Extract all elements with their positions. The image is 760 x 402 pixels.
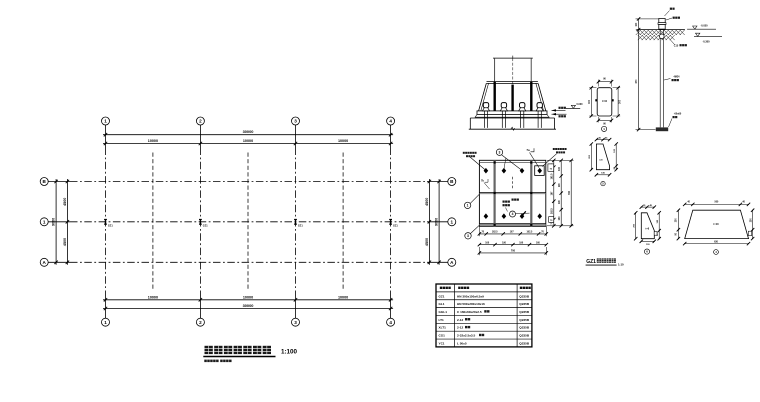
svg-text:300: 300 xyxy=(589,99,591,104)
svg-text:3: 3 xyxy=(467,234,469,238)
svg-text:162.5: 162.5 xyxy=(527,232,533,234)
svg-text:4500: 4500 xyxy=(425,238,429,246)
svg-text:4: 4 xyxy=(389,119,392,124)
svg-text:HN 500x200x10x16: HN 500x200x10x16 xyxy=(457,302,485,306)
svg-text:250: 250 xyxy=(676,218,678,223)
svg-text:300: 300 xyxy=(619,99,621,104)
svg-text:190: 190 xyxy=(559,183,561,188)
svg-text:40: 40 xyxy=(687,200,690,203)
svg-text:1: 1 xyxy=(43,220,46,225)
svg-text:30000: 30000 xyxy=(243,129,254,134)
svg-text:160: 160 xyxy=(559,166,561,171)
svg-text:180: 180 xyxy=(614,148,616,152)
svg-text:35: 35 xyxy=(643,205,646,207)
svg-text:Q235B: Q235B xyxy=(519,302,530,306)
svg-text:4M24: 4M24 xyxy=(674,75,681,78)
svg-text:140: 140 xyxy=(601,172,605,175)
svg-text:2: 2 xyxy=(199,320,202,325)
svg-text:4500: 4500 xyxy=(425,198,429,206)
svg-text:Q235B: Q235B xyxy=(519,334,530,338)
svg-text:70: 70 xyxy=(541,232,544,234)
svg-text:2-32x2.5x3.5: 2-32x2.5x3.5 xyxy=(457,334,476,338)
svg-text:190: 190 xyxy=(519,242,524,244)
svg-text:-0.050: -0.050 xyxy=(700,25,708,28)
svg-text:GZ1: GZ1 xyxy=(298,225,303,228)
svg-text:40: 40 xyxy=(598,136,601,139)
svg-text:10000: 10000 xyxy=(243,139,253,143)
svg-text:C 160x60x20x2.5: C 160x60x20x2.5 xyxy=(457,310,482,314)
svg-text:1: 1 xyxy=(451,220,454,225)
svg-text:40: 40 xyxy=(742,200,745,203)
svg-text:260: 260 xyxy=(634,223,636,227)
svg-text:10000: 10000 xyxy=(338,139,348,143)
svg-text:45: 45 xyxy=(605,136,608,139)
svg-text:160: 160 xyxy=(485,242,490,244)
svg-text:4: 4 xyxy=(512,212,514,216)
svg-text:100: 100 xyxy=(636,22,638,27)
svg-text:80: 80 xyxy=(657,233,659,236)
svg-text:CG1: CG1 xyxy=(439,334,446,338)
svg-text:1:10: 1:10 xyxy=(618,263,624,267)
svg-text:HN 300x150x6.5x9: HN 300x150x6.5x9 xyxy=(457,294,484,298)
svg-text:10000: 10000 xyxy=(243,295,253,299)
svg-text:167: 167 xyxy=(510,232,515,234)
svg-text:Q235B: Q235B xyxy=(519,341,530,345)
svg-text:Q235B: Q235B xyxy=(519,326,530,330)
svg-text:-60x60: -60x60 xyxy=(674,113,682,116)
svg-text:GZ1: GZ1 xyxy=(108,225,113,228)
svg-text:1: 1 xyxy=(467,204,469,208)
svg-text:162.5: 162.5 xyxy=(552,173,554,179)
svg-text:GZ1: GZ1 xyxy=(393,225,398,228)
svg-text:160: 160 xyxy=(559,216,561,221)
svg-text:2: 2 xyxy=(199,119,202,124)
svg-text:162.5: 162.5 xyxy=(552,208,554,214)
svg-text:162.5: 162.5 xyxy=(492,232,498,234)
svg-text:3: 3 xyxy=(294,119,297,124)
svg-text:L 50x5: L 50x5 xyxy=(457,341,467,345)
svg-text:9000: 9000 xyxy=(435,218,439,226)
svg-text:9000: 9000 xyxy=(52,218,56,226)
svg-text:Q235B: Q235B xyxy=(519,318,530,322)
svg-text:700: 700 xyxy=(511,250,516,253)
svg-text:3: 3 xyxy=(294,320,297,325)
svg-text:2-12: 2-12 xyxy=(457,318,463,322)
svg-text:4: 4 xyxy=(389,320,392,325)
svg-text:GGL1: GGL1 xyxy=(439,310,448,314)
svg-text:-0.300: -0.300 xyxy=(702,41,710,44)
svg-text:670: 670 xyxy=(636,79,638,84)
svg-text:250: 250 xyxy=(750,218,752,223)
svg-text:Q235B: Q235B xyxy=(519,294,530,298)
svg-text:10000: 10000 xyxy=(148,295,158,299)
svg-text:130: 130 xyxy=(646,244,650,246)
svg-text:3: 3 xyxy=(499,150,501,154)
svg-text:10000: 10000 xyxy=(338,295,348,299)
svg-text:260: 260 xyxy=(589,154,591,158)
svg-text:45: 45 xyxy=(649,204,652,207)
svg-text:700: 700 xyxy=(568,190,571,195)
svg-text:160: 160 xyxy=(536,242,541,244)
svg-text:90: 90 xyxy=(676,232,678,235)
svg-text:7a: 7a xyxy=(526,148,530,152)
svg-text:7b: 7b xyxy=(481,179,484,183)
svg-text:2-12: 2-12 xyxy=(457,326,463,330)
svg-text:C15: C15 xyxy=(674,44,679,47)
svg-text:GZ1: GZ1 xyxy=(586,259,596,265)
svg-text:XLT1: XLT1 xyxy=(439,326,447,330)
svg-text:t=10: t=10 xyxy=(602,100,608,103)
svg-text:90: 90 xyxy=(603,123,606,125)
svg-text:Q235B: Q235B xyxy=(519,310,530,314)
svg-text:630: 630 xyxy=(714,241,719,243)
svg-text:t=10: t=10 xyxy=(713,222,719,226)
svg-text:4500: 4500 xyxy=(63,238,67,246)
svg-text:GZ1: GZ1 xyxy=(439,294,445,298)
svg-text:90: 90 xyxy=(603,79,606,81)
svg-text:500: 500 xyxy=(714,201,719,203)
svg-text:LT1: LT1 xyxy=(439,318,445,322)
svg-text:1: 1 xyxy=(104,320,107,325)
svg-text:4500: 4500 xyxy=(63,198,67,206)
svg-text:GZ1: GZ1 xyxy=(203,225,208,228)
svg-text:70: 70 xyxy=(482,232,485,234)
svg-text:1: 1 xyxy=(104,119,107,124)
svg-text:YC1: YC1 xyxy=(439,341,445,345)
svg-text:GL1: GL1 xyxy=(439,302,445,306)
svg-text:30000: 30000 xyxy=(243,303,254,308)
svg-text:180: 180 xyxy=(657,219,659,223)
svg-text:0.000: 0.000 xyxy=(577,103,584,106)
svg-text:1:100: 1:100 xyxy=(281,348,298,355)
svg-text:190: 190 xyxy=(559,199,561,204)
svg-text:190: 190 xyxy=(502,242,507,244)
svg-text:10000: 10000 xyxy=(148,139,158,143)
svg-text:167: 167 xyxy=(552,191,554,196)
